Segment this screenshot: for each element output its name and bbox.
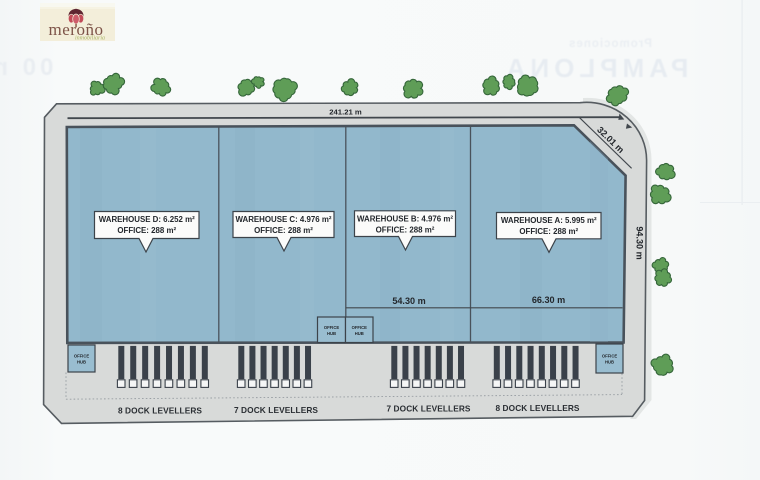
svg-text:WAREHOUSE B: 4.976 m²: WAREHOUSE B: 4.976 m² <box>357 214 453 223</box>
svg-text:7 DOCK LEVELLERS: 7 DOCK LEVELLERS <box>386 404 470 414</box>
svg-text:OFFICE: OFFICE <box>602 354 618 359</box>
svg-text:OFFICE: OFFICE <box>352 325 368 330</box>
svg-text:WAREHOUSE C: 4.976 m²: WAREHOUSE C: 4.976 m² <box>235 215 331 224</box>
svg-text:HUB: HUB <box>327 331 336 336</box>
svg-text:HUB: HUB <box>605 360 614 365</box>
svg-text:OFFICE: 288 m²: OFFICE: 288 m² <box>519 227 578 236</box>
svg-text:WAREHOUSE D: 6.252 m²: WAREHOUSE D: 6.252 m² <box>99 215 195 224</box>
svg-text:8 DOCK LEVELLERS: 8 DOCK LEVELLERS <box>118 406 202 416</box>
svg-text:54.30 m: 54.30 m <box>392 296 425 306</box>
svg-text:HUB: HUB <box>355 331 364 336</box>
svg-text:OFFICE: OFFICE <box>74 354 90 359</box>
svg-text:7 DOCK LEVELLERS: 7 DOCK LEVELLERS <box>234 405 318 415</box>
svg-text:Promociones: Promociones <box>568 38 652 50</box>
svg-text:241.21 m: 241.21 m <box>329 108 362 117</box>
svg-text:66.30 m: 66.30 m <box>532 295 565 305</box>
svg-text:HUB: HUB <box>77 360 86 365</box>
svg-text:OFFICE: 288 m²: OFFICE: 288 m² <box>254 226 313 235</box>
svg-text:OFFICE: 288 m²: OFFICE: 288 m² <box>376 225 435 234</box>
svg-text:inmobiliaria: inmobiliaria <box>75 36 105 42</box>
svg-text:WAREHOUSE A: 5.995 m²: WAREHOUSE A: 5.995 m² <box>501 216 597 225</box>
svg-text:00 m: 00 m <box>0 54 53 81</box>
svg-text:8 DOCK LEVELLERS: 8 DOCK LEVELLERS <box>495 403 579 413</box>
svg-text:OFFICE: OFFICE <box>324 325 340 330</box>
svg-text:94.30 m: 94.30 m <box>635 226 645 259</box>
svg-text:OFFICE: 288 m²: OFFICE: 288 m² <box>117 226 176 235</box>
